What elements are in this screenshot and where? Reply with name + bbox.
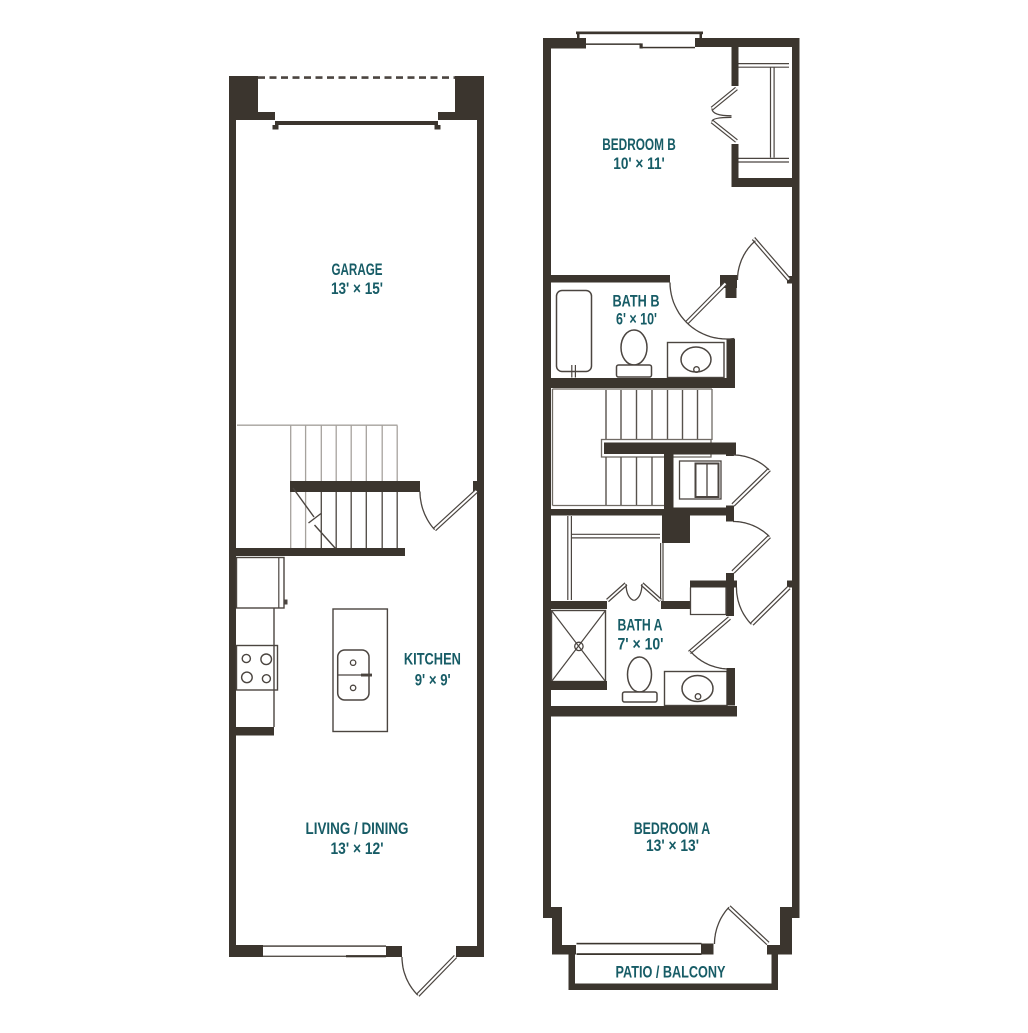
svg-text:BATH B: BATH B [613, 292, 660, 311]
svg-text:GARAGE: GARAGE [332, 260, 383, 279]
svg-text:13' × 12': 13' × 12' [331, 839, 384, 858]
svg-text:BATH A: BATH A [618, 616, 663, 635]
svg-text:BEDROOM B: BEDROOM B [602, 135, 676, 154]
svg-text:LIVING / DINING: LIVING / DINING [306, 819, 409, 838]
svg-text:7' × 10': 7' × 10' [618, 635, 664, 654]
svg-text:KITCHEN: KITCHEN [404, 650, 461, 669]
svg-text:13' × 13': 13' × 13' [646, 836, 699, 855]
svg-text:6' × 10': 6' × 10' [616, 310, 657, 329]
svg-text:PATIO / BALCONY: PATIO / BALCONY [616, 963, 726, 982]
svg-text:10' × 11': 10' × 11' [613, 154, 665, 173]
svg-text:13' × 15': 13' × 15' [331, 279, 383, 298]
svg-text:9' × 9': 9' × 9' [415, 671, 451, 690]
